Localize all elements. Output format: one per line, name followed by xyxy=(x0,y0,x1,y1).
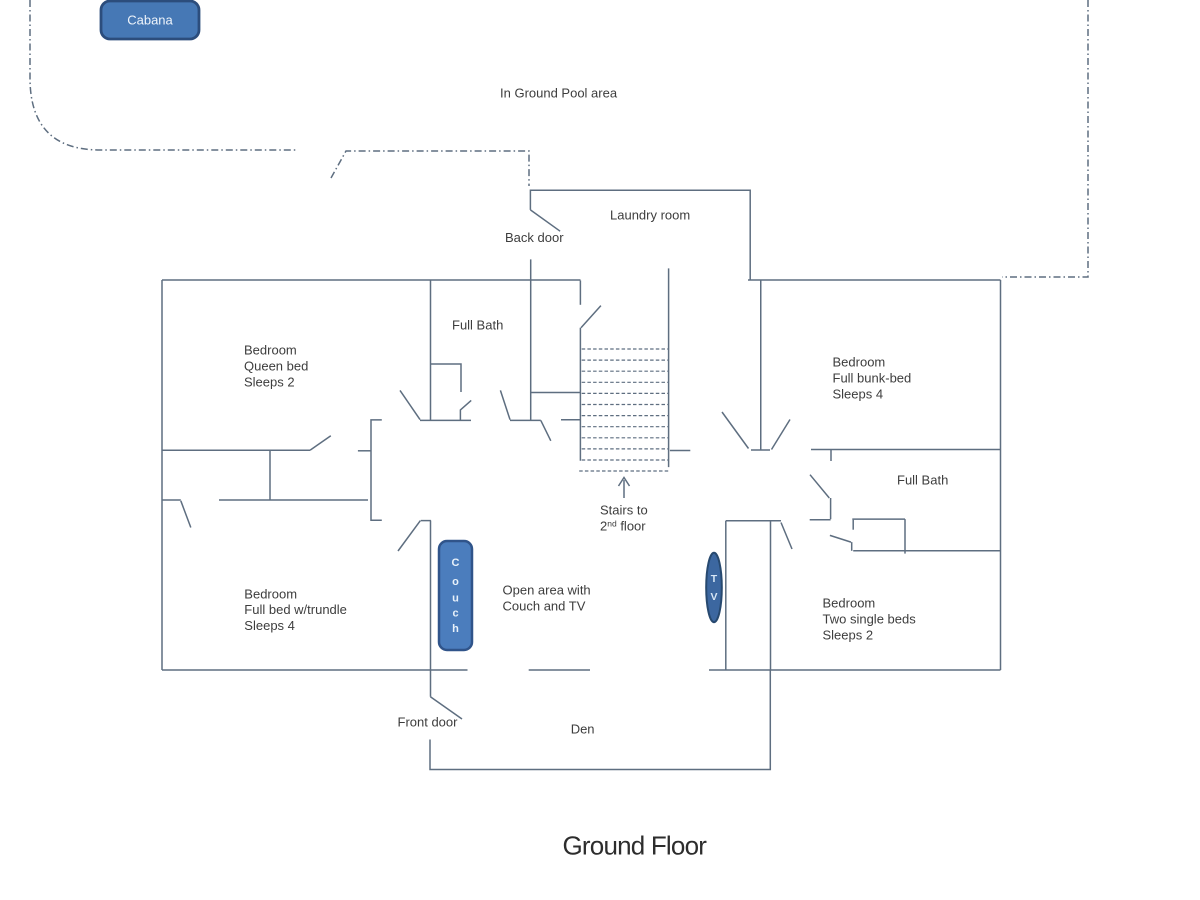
svg-text:Full bunk-bed: Full bunk-bed xyxy=(833,371,912,386)
svg-text:o: o xyxy=(452,576,459,588)
svg-text:Den: Den xyxy=(571,721,595,736)
svg-text:2nd floor: 2nd floor xyxy=(600,519,646,534)
svg-text:Stairs to: Stairs to xyxy=(600,503,648,518)
svg-text:Bedroom: Bedroom xyxy=(823,596,876,611)
svg-text:Laundry room: Laundry room xyxy=(610,208,690,223)
svg-text:Couch and TV: Couch and TV xyxy=(503,599,586,614)
svg-text:Sleeps 4: Sleeps 4 xyxy=(244,618,295,633)
svg-text:Queen bed: Queen bed xyxy=(244,359,308,374)
svg-text:Open area with: Open area with xyxy=(503,583,591,598)
svg-text:Sleeps 4: Sleeps 4 xyxy=(833,387,884,402)
svg-text:In Ground Pool area: In Ground Pool area xyxy=(500,86,618,101)
svg-text:Bedroom: Bedroom xyxy=(833,355,886,370)
svg-text:Bedroom: Bedroom xyxy=(244,587,297,602)
svg-text:Cabana: Cabana xyxy=(127,13,173,28)
svg-text:Ground Floor: Ground Floor xyxy=(563,831,708,861)
svg-text:c: c xyxy=(452,608,458,620)
svg-text:Bedroom: Bedroom xyxy=(244,343,297,358)
svg-text:Two single beds: Two single beds xyxy=(823,612,917,627)
svg-text:Back door: Back door xyxy=(505,230,564,245)
svg-text:T: T xyxy=(711,573,718,585)
svg-text:Sleeps 2: Sleeps 2 xyxy=(823,628,874,643)
svg-text:Full Bath: Full Bath xyxy=(897,473,948,488)
svg-text:u: u xyxy=(452,593,459,605)
svg-text:Sleeps 2: Sleeps 2 xyxy=(244,375,295,390)
svg-text:h: h xyxy=(452,623,459,635)
svg-text:V: V xyxy=(710,591,717,603)
svg-text:Full bed w/trundle: Full bed w/trundle xyxy=(244,602,347,617)
svg-text:C: C xyxy=(452,557,460,569)
svg-text:Front door: Front door xyxy=(398,714,459,729)
svg-text:Full Bath: Full Bath xyxy=(452,318,503,333)
